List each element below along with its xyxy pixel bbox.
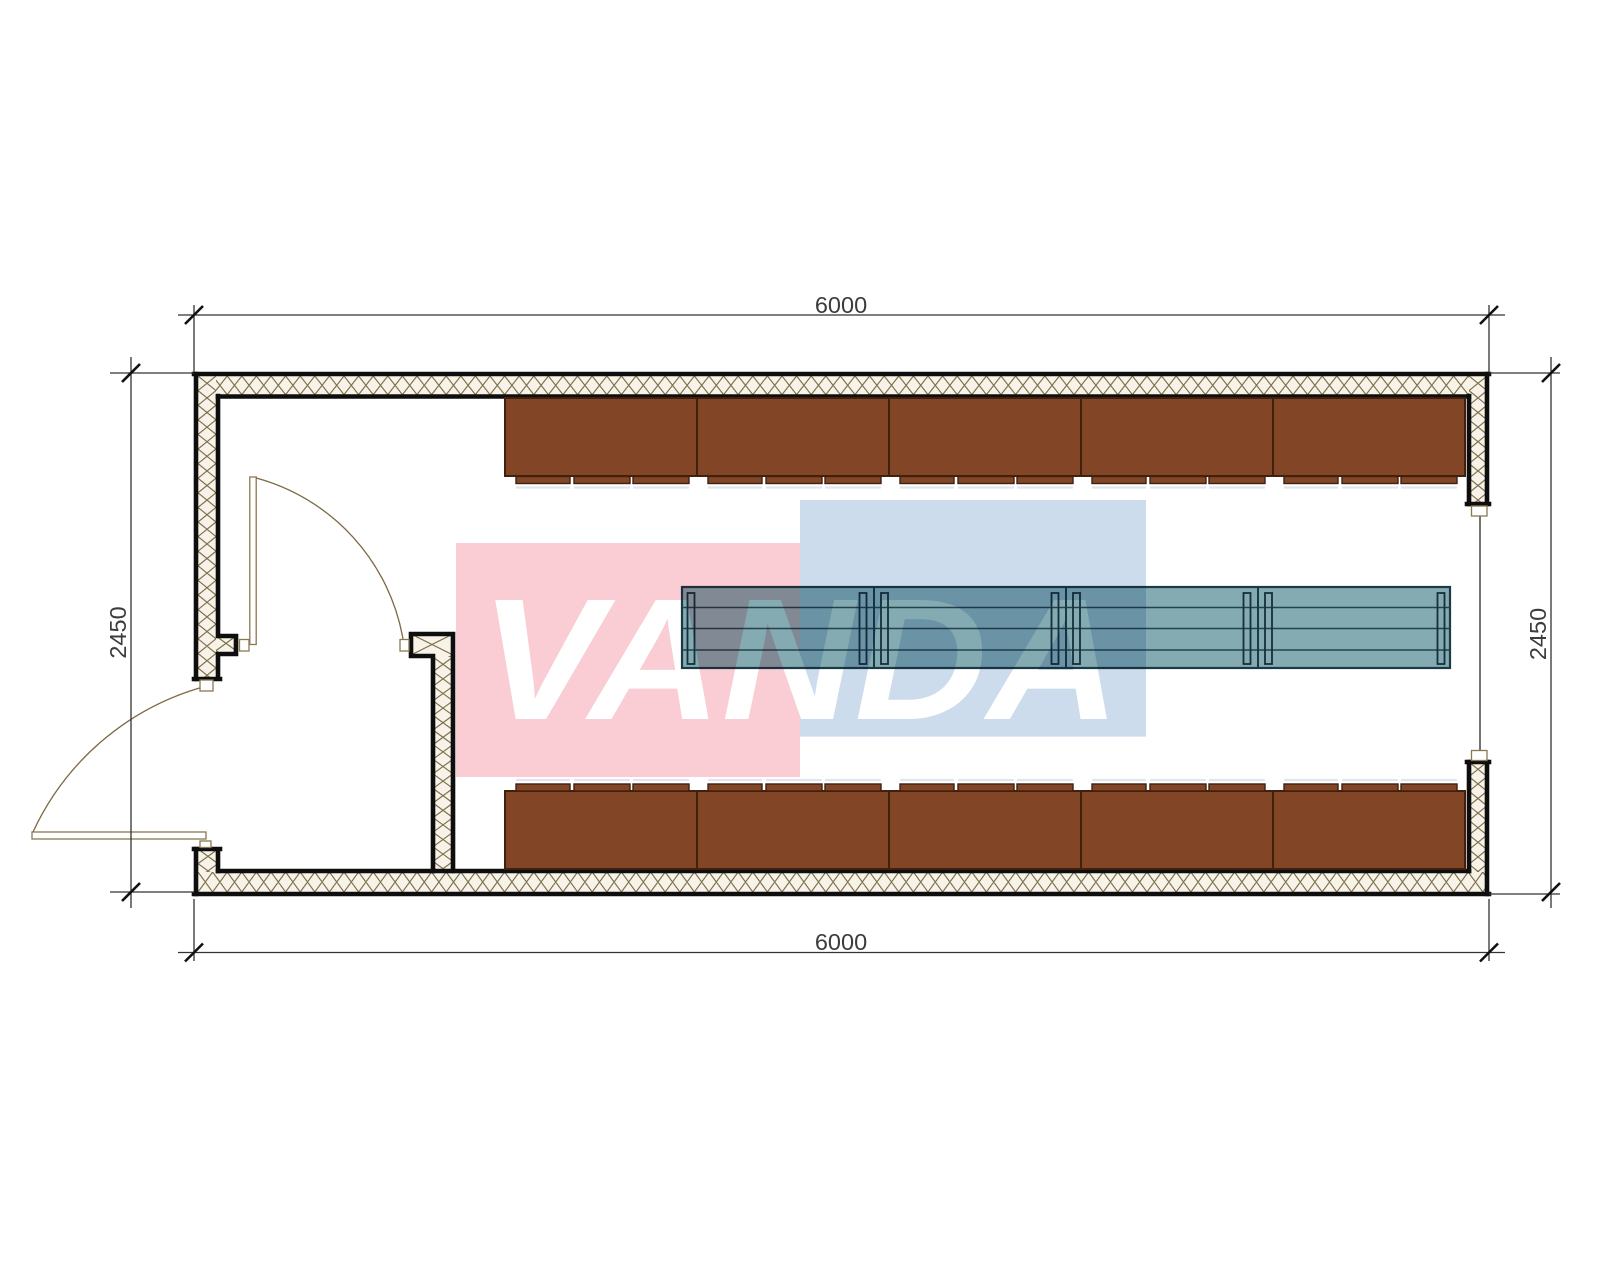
- svg-text:2450: 2450: [1525, 608, 1551, 660]
- svg-text:VANDA: VANDA: [480, 562, 1120, 756]
- svg-text:2450: 2450: [105, 606, 131, 658]
- svg-text:6000: 6000: [815, 292, 867, 318]
- svg-text:6000: 6000: [815, 929, 867, 955]
